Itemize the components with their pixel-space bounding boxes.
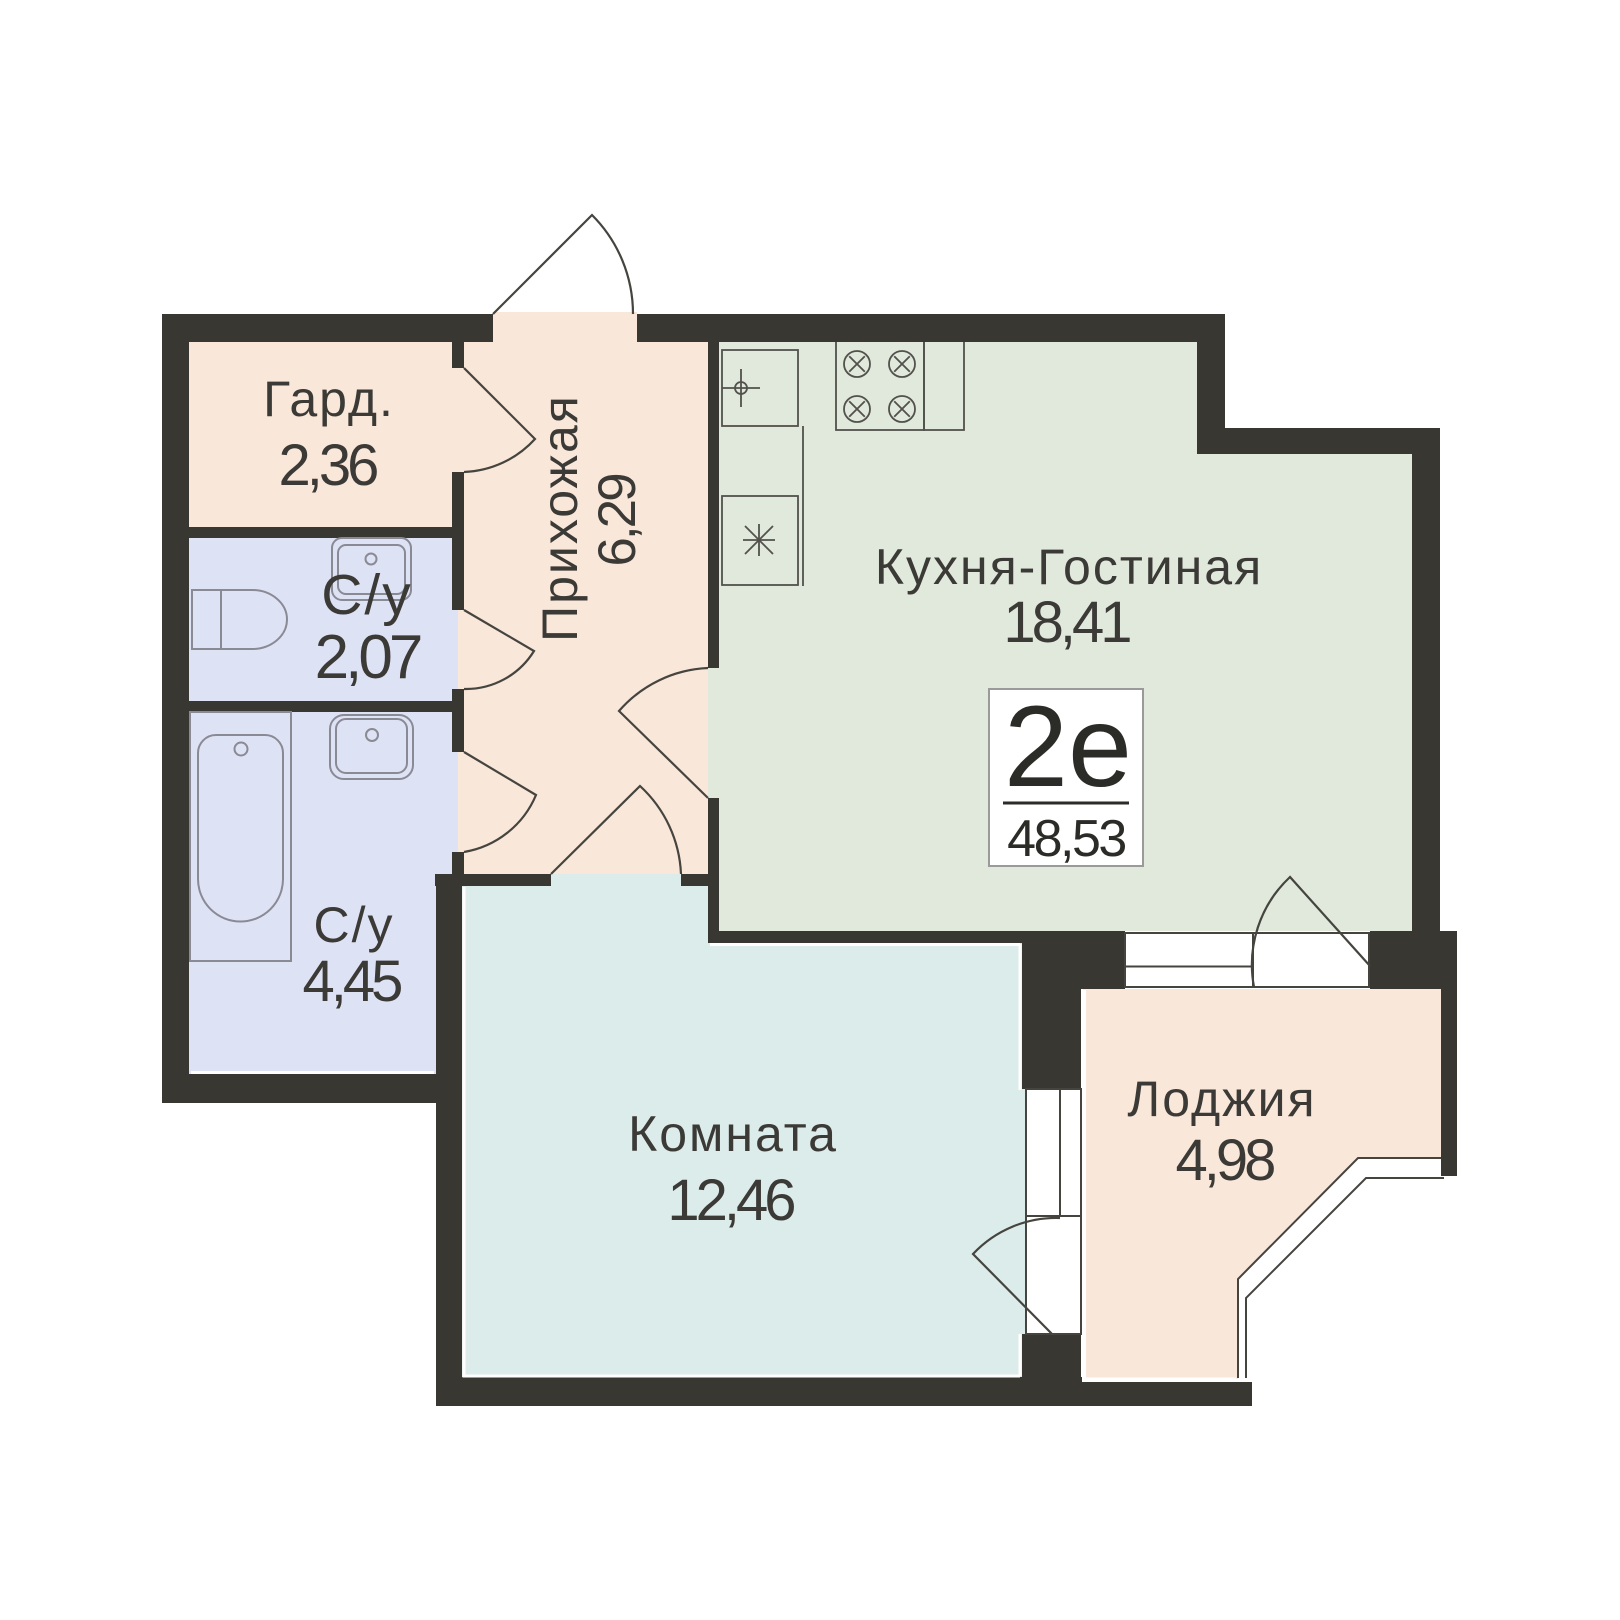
svg-text:12,46: 12,46 — [667, 1168, 794, 1233]
svg-text:2е: 2е — [1004, 683, 1132, 811]
svg-text:6,29: 6,29 — [588, 475, 647, 567]
svg-text:4,98: 4,98 — [1176, 1128, 1275, 1193]
svg-text:Кухня-Гостиная: Кухня-Гостиная — [875, 539, 1263, 595]
svg-text:2,07: 2,07 — [315, 623, 421, 692]
svg-text:С/у: С/у — [321, 563, 413, 627]
svg-text:2,36: 2,36 — [279, 433, 378, 498]
svg-text:4,45: 4,45 — [303, 949, 402, 1014]
svg-text:18,41: 18,41 — [1003, 590, 1130, 655]
svg-text:Прихожая: Прихожая — [532, 394, 588, 642]
svg-text:Лоджия: Лоджия — [1127, 1071, 1316, 1127]
svg-text:48,53: 48,53 — [1007, 810, 1125, 868]
svg-text:С/у: С/у — [314, 897, 395, 953]
svg-text:Гард.: Гард. — [263, 371, 395, 427]
svg-text:Комната: Комната — [628, 1106, 838, 1162]
